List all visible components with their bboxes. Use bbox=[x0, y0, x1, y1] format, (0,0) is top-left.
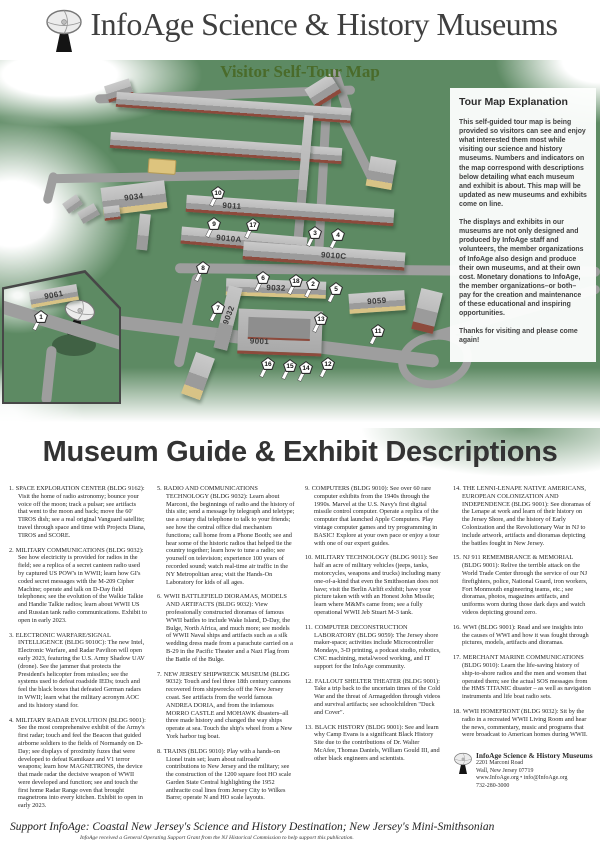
guide-columns: 1.SPACE EXPLORATION CENTER (BLDG 9162): … bbox=[0, 479, 600, 817]
building-label-9034: 9034 bbox=[124, 191, 144, 202]
guide-item-8: 8.TRAINS (BLDG 9010): Play with a hands-… bbox=[157, 748, 295, 803]
guide-item-7: 7.NEW JERSEY SHIPWRECK MUSEUM (BLDG 9032… bbox=[157, 671, 295, 741]
shed bbox=[77, 203, 100, 224]
guide-item-4: 4.MILITARY RADAR EVOLUTION (BLDG 9001): … bbox=[9, 717, 147, 811]
map-pin-2: 2 bbox=[306, 277, 320, 297]
page-footer: Support InfoAge: Coastal New Jersey's Sc… bbox=[0, 817, 600, 841]
map-pin-14: 14 bbox=[299, 361, 313, 381]
map-pin-18: 18 bbox=[289, 274, 303, 294]
guide-item-16: 16.WWI (BLDG 9001): Read and see insight… bbox=[453, 624, 591, 647]
explanation-paragraph: Thanks for visiting and please come agai… bbox=[459, 327, 588, 345]
map-pin-15: 15 bbox=[283, 359, 297, 379]
building bbox=[181, 352, 215, 400]
guide-item-10: 10.MILITARY TECHNOLOGY (BLDG 9011): See … bbox=[305, 554, 443, 616]
building-9059: 9059 bbox=[348, 290, 405, 314]
guide-item-3: 3.ELECTRONIC WARFARE/SIGNAL INTELLIGENCE… bbox=[9, 632, 147, 710]
guide-item-15: 15.NJ 911 REMEMBRANCE & MEMORIAL (BLDG 9… bbox=[453, 554, 591, 616]
guide-item-1: 1.SPACE EXPLORATION CENTER (BLDG 9162): … bbox=[9, 485, 147, 540]
map-pin-7: 7 bbox=[211, 301, 225, 321]
building-label-9001: 9001 bbox=[250, 336, 270, 346]
building-9001: 9001 bbox=[237, 309, 323, 357]
road bbox=[52, 170, 307, 183]
guide-item-17: 17.MERCHANT MARINE COMMUNICATIONS (BLDG … bbox=[453, 654, 591, 701]
contact-address1: 2201 Marconi Road bbox=[476, 760, 593, 768]
map-pin-17: 17 bbox=[246, 218, 260, 238]
map-pin-16: 16 bbox=[261, 357, 275, 377]
map-pin-4: 4 bbox=[331, 228, 345, 248]
page-header: InfoAge Science & History Museums bbox=[0, 0, 600, 60]
campus-map: Visitor Self-Tour Map 9034 9011 9010A 90… bbox=[0, 60, 600, 426]
building-annex bbox=[103, 205, 121, 221]
guide-item-12: 12.FALLOUT SHELTER THEATER (BLDG 9001): … bbox=[305, 678, 443, 717]
map-pin-1: 1 bbox=[34, 310, 48, 330]
grant-note: InfoAge received a General Operating Sup… bbox=[80, 835, 590, 841]
explanation-paragraph: The displays and exhibits in our museums… bbox=[459, 218, 588, 318]
road bbox=[41, 346, 57, 405]
map-pin-13: 13 bbox=[314, 312, 328, 332]
map-pin-11: 11 bbox=[371, 324, 385, 344]
support-tagline: Support InfoAge: Coastal New Jersey's Sc… bbox=[10, 821, 590, 833]
guide-item-2: 2.MILITARY COMMUNICATIONS (BLDG 9032): S… bbox=[9, 547, 147, 625]
map-inset-9061: 9061 bbox=[2, 270, 121, 404]
picnic-tables bbox=[148, 158, 177, 175]
map-inset-area: 9061 bbox=[4, 272, 119, 402]
guide-item-5: 5.RADIO AND COMMUNICATIONS TECHNOLOGY (B… bbox=[157, 485, 295, 586]
explanation-title: Tour Map Explanation bbox=[459, 96, 588, 108]
map-pin-6: 6 bbox=[256, 271, 270, 291]
contact-block: InfoAge Science & History Museums 2201 M… bbox=[453, 751, 591, 791]
satellite-dish-icon bbox=[43, 8, 85, 54]
guide-item-18: 18.WWII HOMEFRONT (BLDG 9032): Sit by th… bbox=[453, 708, 591, 739]
guide-item-9: 9.COMPUTERS (BLDG 9010): See over 60 rar… bbox=[305, 485, 443, 547]
building bbox=[366, 156, 397, 190]
contact-web: www.InfoAge.org • info@InfoAge.org bbox=[476, 775, 593, 783]
map-pin-10: 10 bbox=[211, 186, 225, 206]
guide-item-13: 13.BLACK HISTORY (BLDG 9001): See and le… bbox=[305, 724, 443, 763]
satellite-dish-icon bbox=[453, 752, 473, 775]
map-pin-9: 9 bbox=[207, 217, 221, 237]
contact-phone: 732-280-3000 bbox=[476, 783, 593, 791]
building-label-9010c: 9010C bbox=[321, 251, 347, 262]
building-label-9011: 9011 bbox=[222, 201, 242, 211]
building-label-9059: 9059 bbox=[367, 296, 387, 306]
map-pin-8: 8 bbox=[196, 261, 210, 281]
map-pin-12: 12 bbox=[321, 357, 335, 377]
building bbox=[136, 214, 151, 251]
guide-column-2: 5.RADIO AND COMMUNICATIONS TECHNOLOGY (B… bbox=[157, 485, 295, 817]
map-subtitle: Visitor Self-Tour Map bbox=[0, 62, 600, 82]
guide-column-3: 9.COMPUTERS (BLDG 9010): See over 60 rar… bbox=[305, 485, 443, 817]
explanation-paragraph: This self-guided tour map is being provi… bbox=[459, 118, 588, 209]
map-pin-3: 3 bbox=[308, 226, 322, 246]
guide-item-14: 14.THE LENNI-LENAPE NATIVE AMERICANS, EU… bbox=[453, 485, 591, 547]
contact-name: InfoAge Science & History Museums bbox=[476, 751, 593, 760]
guide-column-4: 14.THE LENNI-LENAPE NATIVE AMERICANS, EU… bbox=[453, 485, 591, 817]
building bbox=[411, 288, 443, 334]
map-pin-5: 5 bbox=[329, 282, 343, 302]
page-title: InfoAge Science & History Museums bbox=[91, 6, 558, 43]
guide-item-11: 11.COMPUTER DECONSTRUCTION LABORATORY (B… bbox=[305, 624, 443, 671]
tour-map-explanation-panel: Tour Map Explanation This self-guided to… bbox=[450, 88, 596, 362]
guide-column-1: 1.SPACE EXPLORATION CENTER (BLDG 9162): … bbox=[9, 485, 147, 817]
guide-title: Museum Guide & Exhibit Descriptions bbox=[0, 428, 600, 479]
building-label-9061: 9061 bbox=[44, 289, 65, 301]
guide-item-6: 6.WWII BATTLEFIELD DIORAMAS, MODELS AND … bbox=[157, 593, 295, 663]
road bbox=[42, 171, 58, 204]
